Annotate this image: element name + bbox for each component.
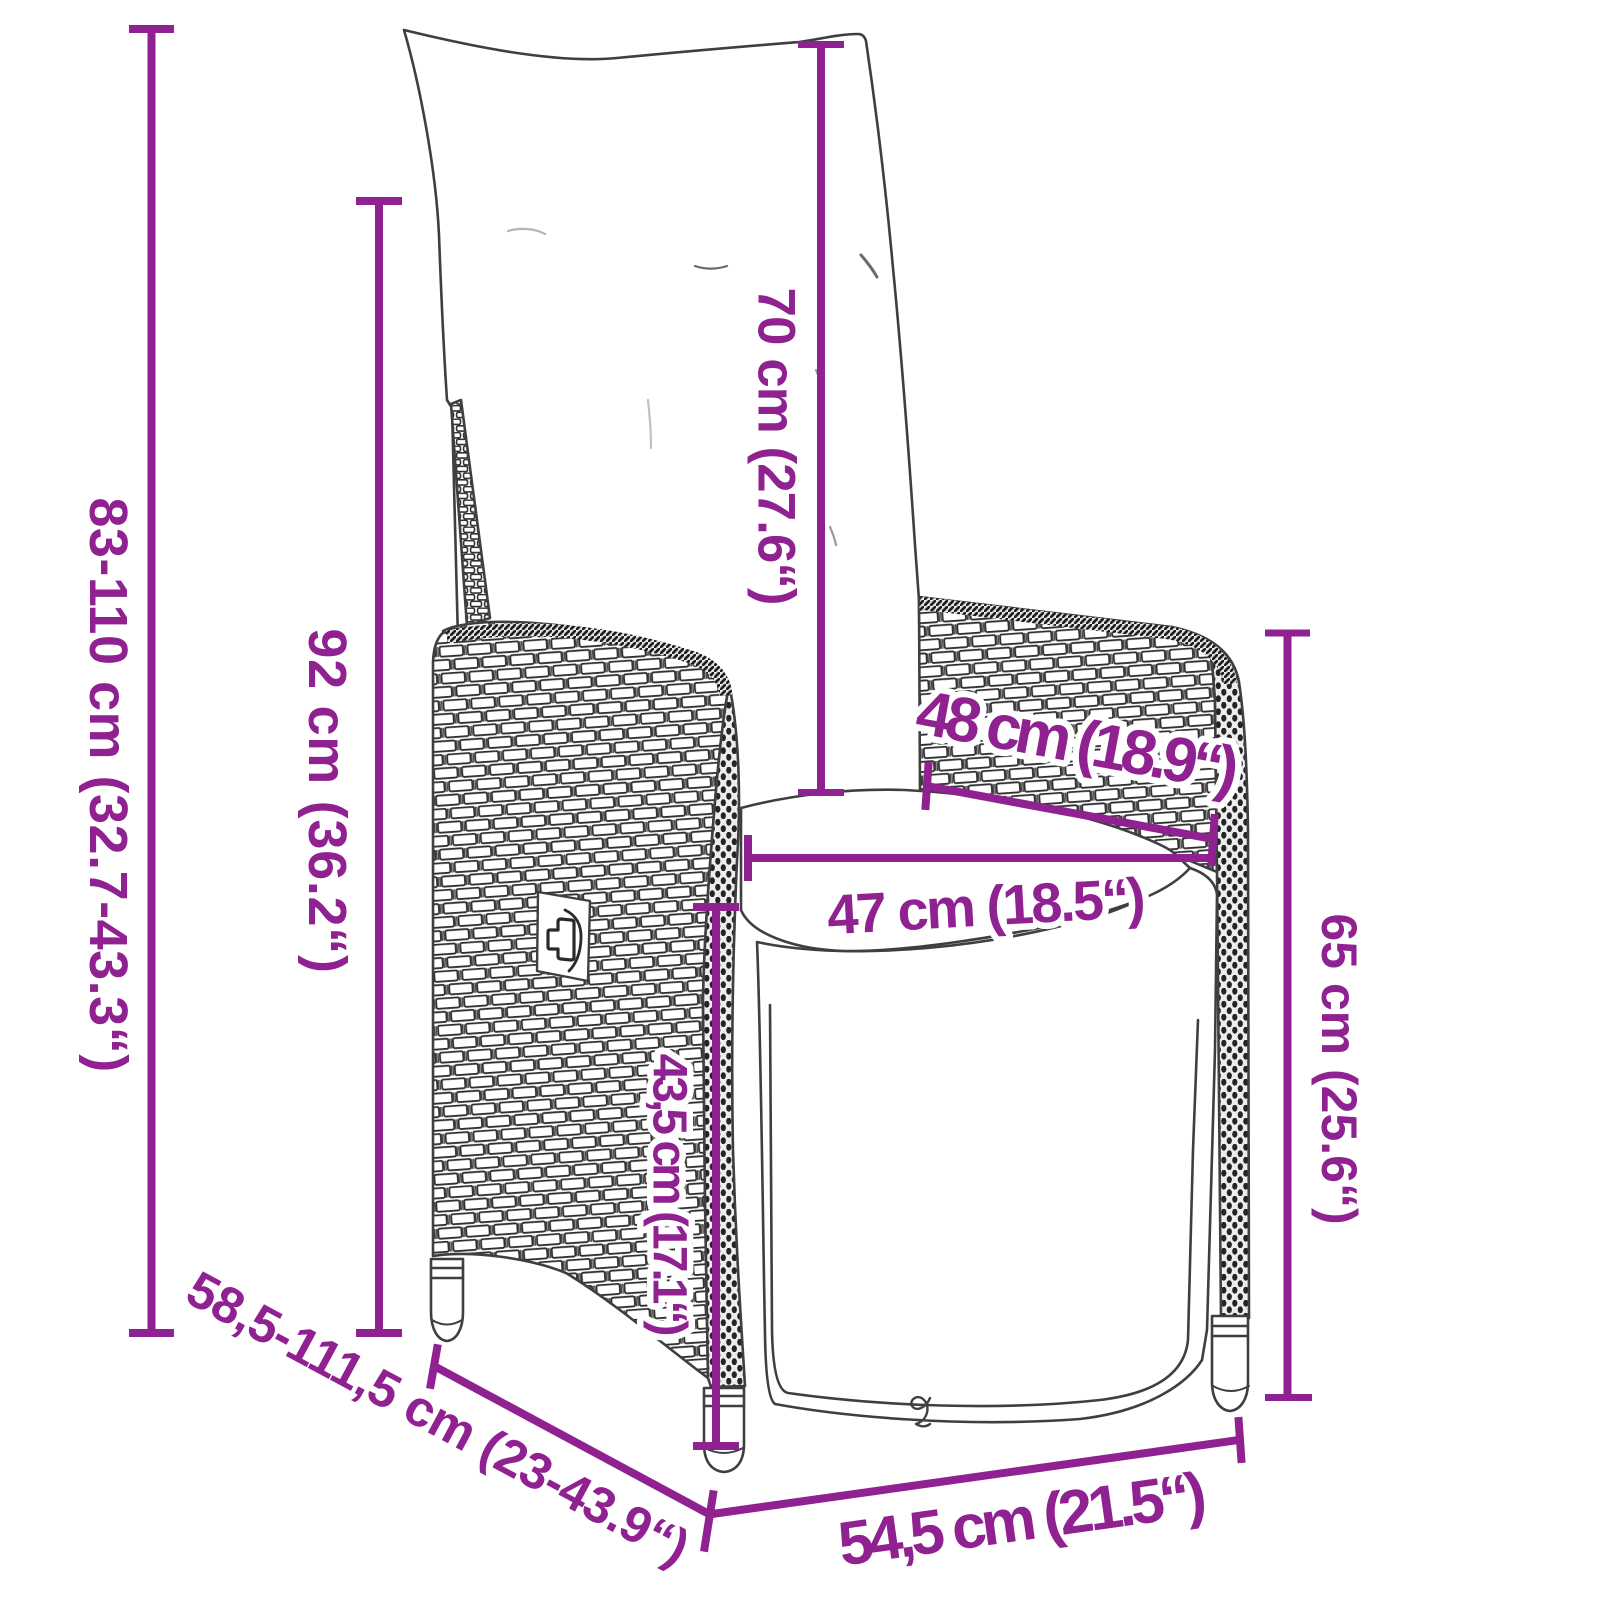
svg-text:43,5 cm (17.1“): 43,5 cm (17.1“) (643, 1054, 696, 1335)
svg-text:70 cm (27.6“): 70 cm (27.6“) (747, 288, 806, 605)
svg-text:92 cm (36.2“): 92 cm (36.2“) (297, 628, 357, 973)
svg-text:65 cm (25.6“): 65 cm (25.6“) (1311, 913, 1367, 1224)
svg-text:83-110 cm (32.7-43.3“): 83-110 cm (32.7-43.3“) (78, 497, 138, 1072)
